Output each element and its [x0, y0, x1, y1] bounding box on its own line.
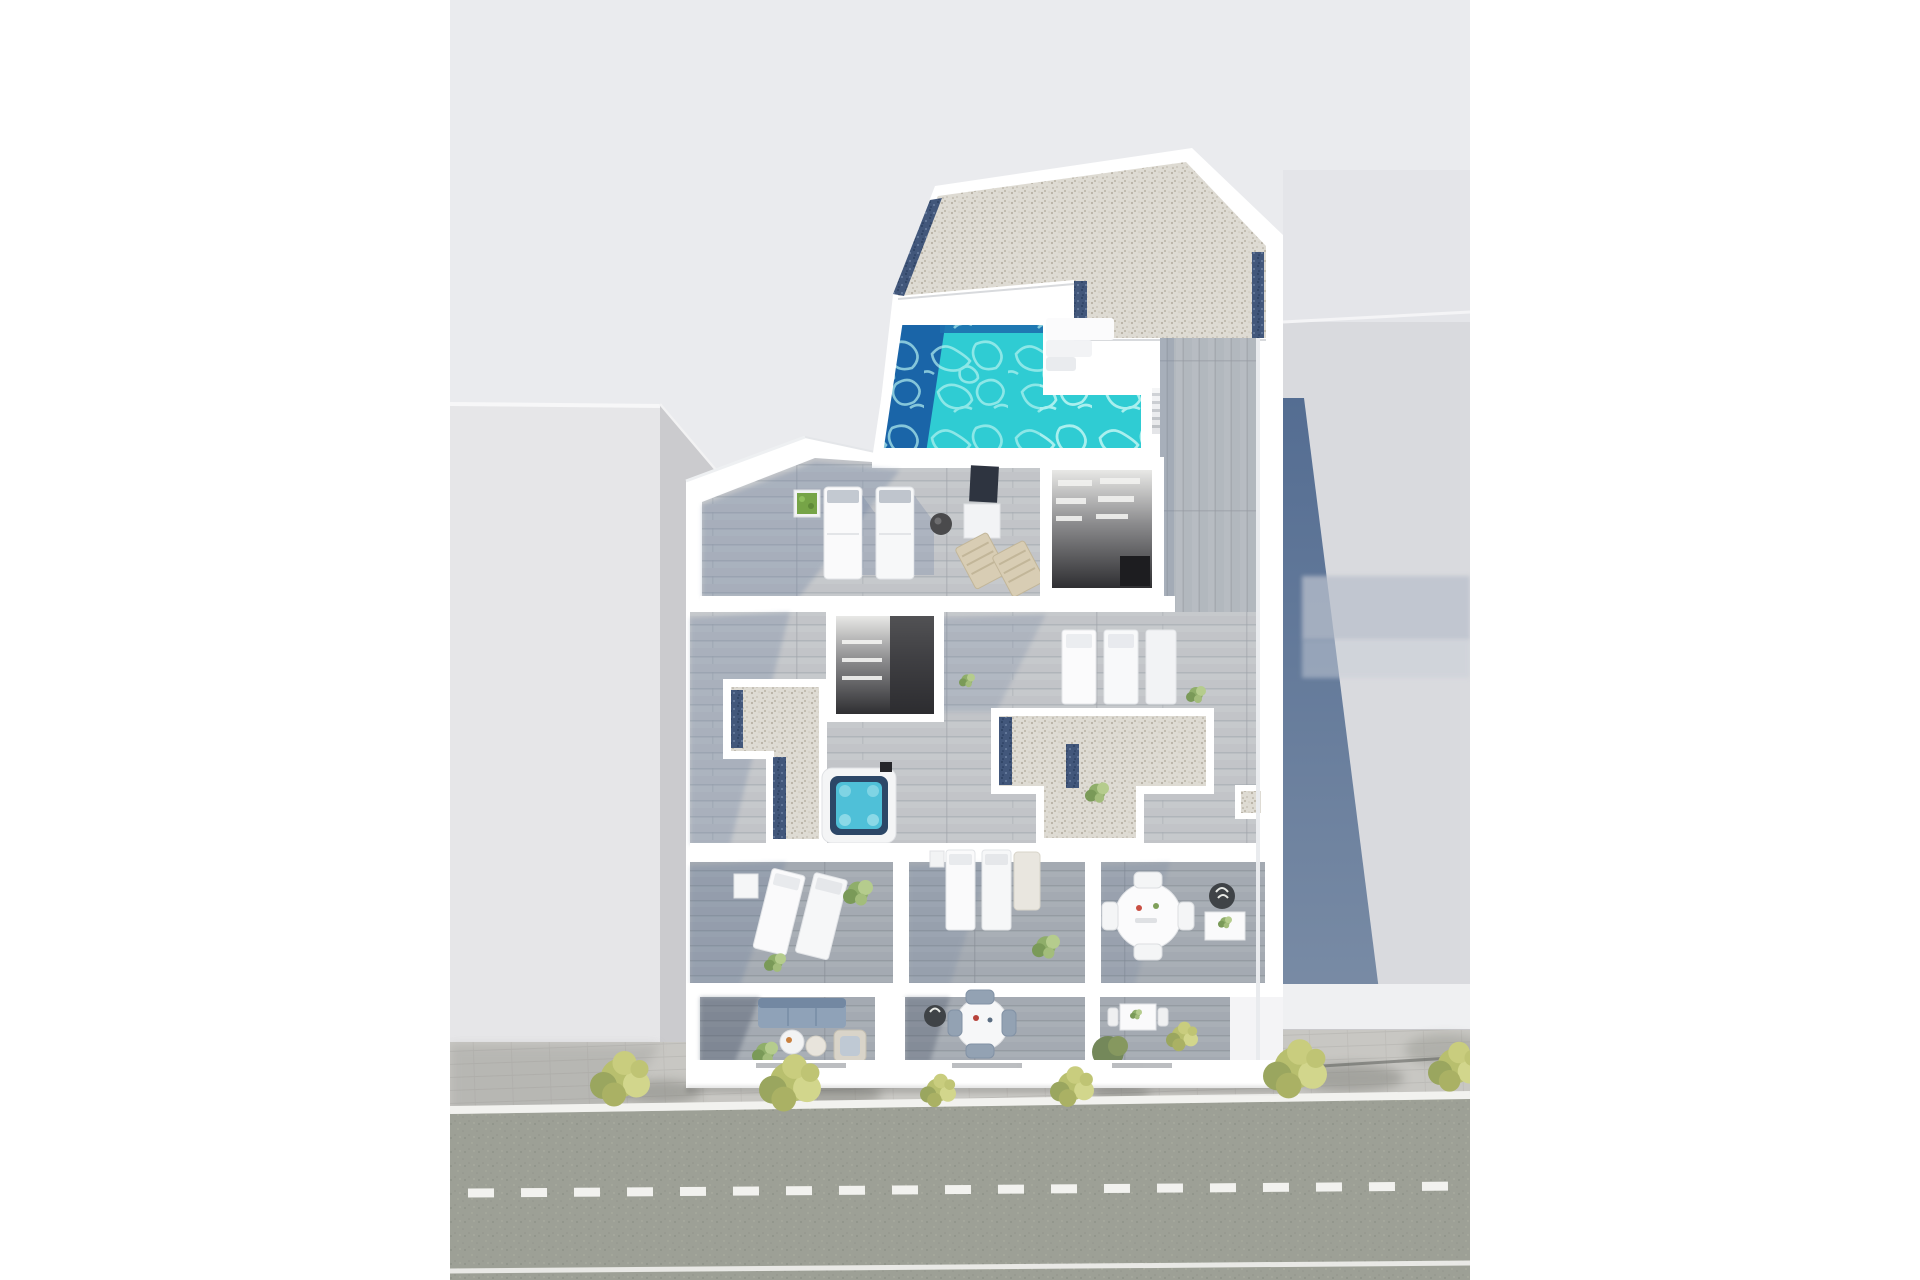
shadow-band [1302, 576, 1470, 640]
lower-rooms [690, 850, 1265, 985]
right-margin [1470, 0, 1920, 1280]
render-canvas [0, 0, 1920, 1280]
right-background-building [1267, 170, 1470, 1030]
coffee-table [806, 1036, 826, 1056]
jacuzzi [822, 762, 896, 843]
screenshot-stage [0, 0, 1920, 1280]
stairwell-opening-upper [1040, 457, 1164, 598]
left-background-building [450, 404, 716, 1045]
coffee-table [780, 1030, 804, 1054]
stairwell-opening-middle [826, 606, 944, 722]
dining-table [1115, 883, 1181, 949]
side-table [930, 513, 952, 535]
pool-steps [1046, 318, 1114, 340]
middle-floor [690, 606, 1264, 845]
roof-side-deck [1160, 338, 1256, 614]
wall-band [690, 843, 1265, 862]
left-margin [0, 0, 450, 1280]
deck-bench [964, 504, 1000, 538]
roof-trim-right [1252, 252, 1264, 338]
deck-plant-box [794, 490, 820, 517]
right-wall-crease [1256, 338, 1260, 1060]
deck-mat [969, 465, 999, 502]
terrace-table [956, 998, 1008, 1050]
stairwell-dark-step [1120, 556, 1150, 586]
side-table [734, 874, 758, 898]
right-building-street-face [1283, 984, 1470, 1030]
